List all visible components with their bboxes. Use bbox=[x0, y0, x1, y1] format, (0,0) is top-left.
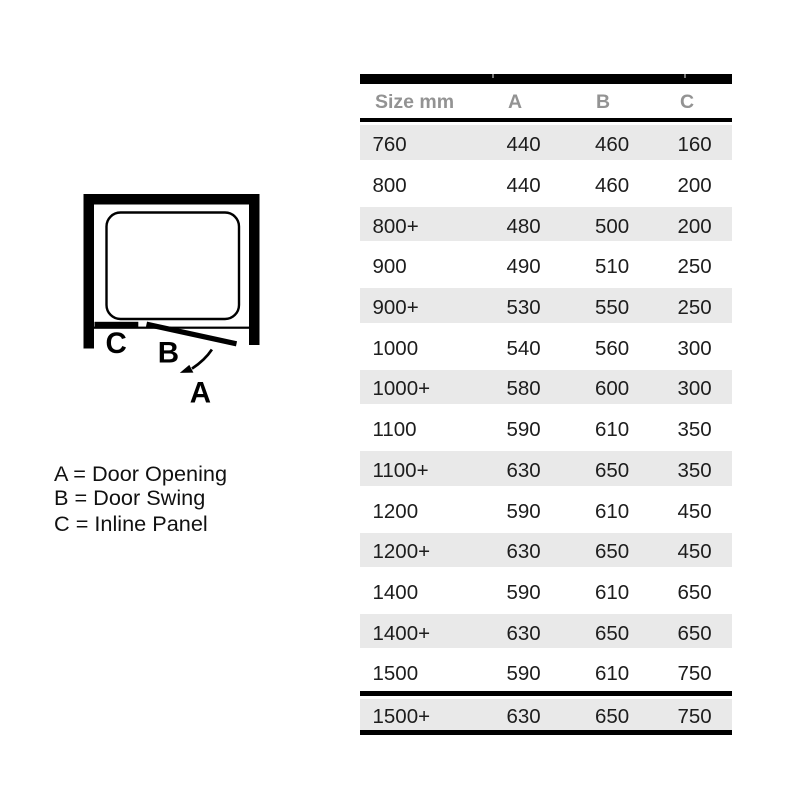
svg-text:C: C bbox=[106, 327, 127, 360]
svg-text:A: A bbox=[190, 376, 211, 409]
svg-text:B: B bbox=[158, 336, 179, 369]
